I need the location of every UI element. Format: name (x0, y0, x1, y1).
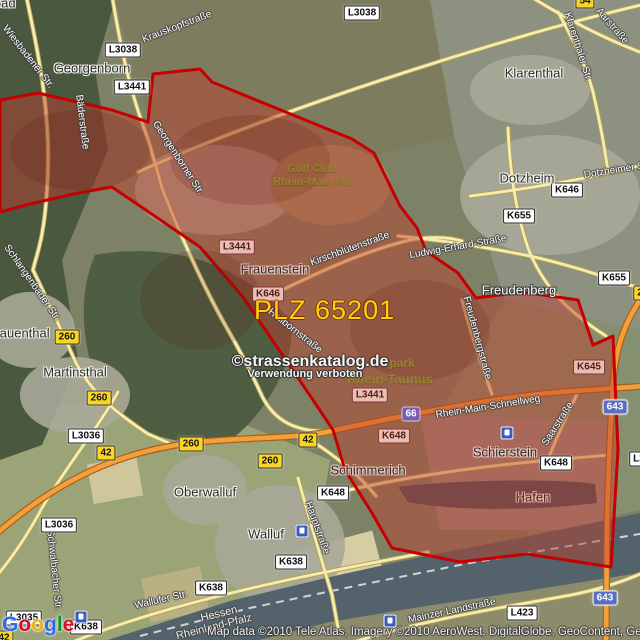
plz-area-label: PLZ 65201 (254, 295, 395, 326)
road-shield-k648: K648 (540, 456, 572, 471)
watermark-subtext: Verwendung verboten (248, 368, 363, 380)
road-shield-k648: K648 (378, 429, 410, 444)
place-label-martinsthal: Martinsthal (43, 365, 107, 380)
place-label-schimmerich: Schimmerich (330, 463, 405, 478)
map-attribution: Map data ©2010 Tele Atlas, Imagery ©2010… (207, 626, 640, 638)
road-shield-k646: K646 (551, 183, 583, 198)
road-shield-643: 643 (603, 400, 628, 415)
road-shield-2: 2 (633, 286, 640, 301)
google-logo-letter: g (44, 613, 57, 636)
road-shield-260: 260 (87, 391, 112, 406)
road-shield-l3038: L3038 (105, 43, 141, 58)
place-label-dotzheim: Dotzheim (500, 171, 555, 186)
road-shield-k638: K638 (275, 555, 307, 570)
place-label-rauenthal: Rauenthal (0, 326, 50, 341)
road-shield-l423: L423 (507, 606, 538, 621)
area-label-park: park (389, 356, 414, 370)
area-label-golf-club: Golf Club (287, 163, 337, 175)
road-shield-260: 260 (55, 330, 80, 345)
road-shield-l3036: L3036 (41, 518, 77, 533)
place-label-schlangenbad: Schlangenbad (0, 0, 16, 11)
road-shield-42: 42 (96, 446, 115, 461)
place-label-georgenborn: Georgenborn (54, 61, 131, 76)
road-shield-l3441: L3441 (219, 240, 255, 255)
road-shield-260: 260 (179, 437, 204, 452)
place-label-klarenthal: Klarenthal (505, 66, 564, 81)
road-shield-643: 643 (593, 591, 618, 606)
road-shield-260: 260 (258, 454, 283, 469)
place-label-hafen: Hafen (516, 490, 551, 505)
road-shield-l3: L3 (629, 452, 640, 467)
train-glyph (300, 528, 305, 534)
train-glyph (79, 614, 84, 620)
google-logo-letter: o (31, 613, 44, 636)
google-logo-letter: G (2, 613, 18, 636)
place-label-frauenstein: Frauenstein (241, 262, 310, 277)
road-shield-k648: K648 (317, 486, 349, 501)
road-shield-l3038: L3038 (344, 6, 380, 21)
road-shield-66: 66 (401, 407, 420, 422)
google-logo-letter: e (63, 613, 75, 636)
place-label-freudenberg: Freudenberg (482, 283, 556, 298)
place-label-schierstein: Schierstein (473, 445, 537, 460)
train-glyph (505, 430, 510, 436)
road-shield-k655: K655 (598, 271, 630, 286)
station-icon (501, 427, 514, 440)
road-shield-l3441: L3441 (114, 80, 150, 95)
place-label-oberwalluf: Oberwalluf (174, 485, 236, 500)
train-glyph (388, 618, 393, 624)
area-label-rhein-main-ev: Rhein-Main eV. (273, 176, 351, 188)
place-label-walluf: Walluf (248, 527, 284, 542)
station-icon (75, 611, 88, 624)
road-shield-54: 54 (575, 0, 594, 9)
road-shield-l3036: L3036 (68, 429, 104, 444)
map-viewport[interactable]: KrauskopfstraßeWiesbadener Str.Bäderstra… (0, 0, 640, 640)
road-shield-42: 42 (298, 433, 317, 448)
road-shield-l3441: L3441 (352, 388, 388, 403)
station-icon (296, 525, 309, 538)
road-shield-k638: K638 (195, 581, 227, 596)
google-logo-letter: o (18, 613, 31, 636)
road-shield-k655: K655 (503, 209, 535, 224)
road-shield-k645: K645 (573, 360, 605, 375)
google-logo: Google (2, 613, 74, 637)
